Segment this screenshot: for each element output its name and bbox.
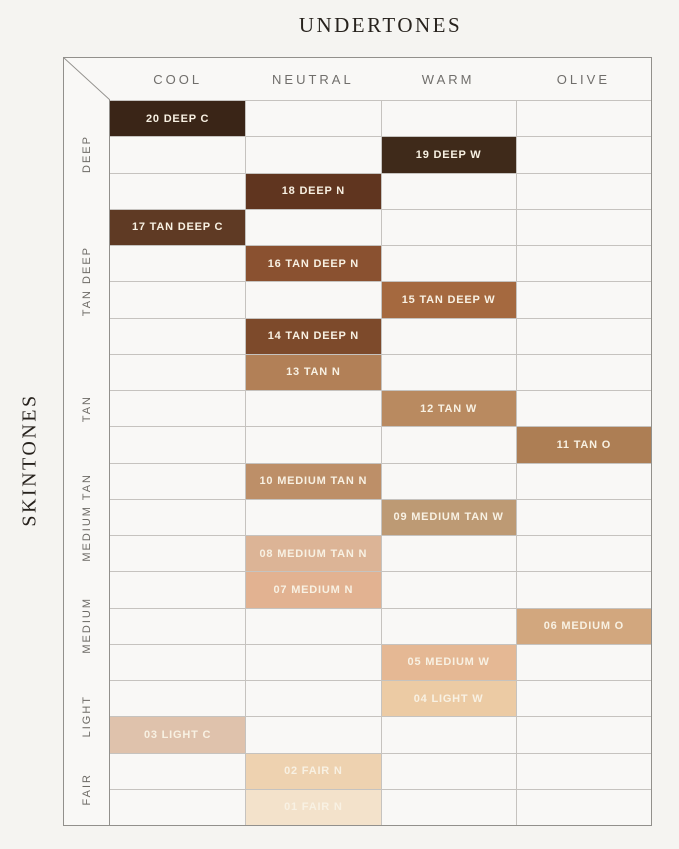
empty-cell	[381, 354, 516, 390]
empty-cell	[245, 390, 380, 426]
empty-cell	[381, 571, 516, 607]
empty-cell	[381, 789, 516, 825]
empty-cell	[110, 535, 245, 571]
shade-swatch: 17 TAN DEEP C	[110, 209, 245, 245]
shade-swatch: 18 DEEP N	[245, 173, 380, 209]
empty-cell	[110, 680, 245, 716]
empty-cell	[516, 680, 651, 716]
shade-swatch: 10 MEDIUM TAN N	[245, 463, 380, 499]
column-header-warm: WARM	[381, 58, 516, 100]
empty-cell	[110, 571, 245, 607]
shade-swatch: 05 MEDIUM W	[381, 644, 516, 680]
empty-cell	[381, 753, 516, 789]
empty-cell	[381, 318, 516, 354]
empty-cell	[381, 716, 516, 752]
empty-cell	[245, 281, 380, 317]
empty-cell	[381, 463, 516, 499]
diagonal-line	[64, 58, 110, 100]
empty-cell	[381, 209, 516, 245]
shade-swatch: 12 TAN W	[381, 390, 516, 426]
empty-cell	[110, 354, 245, 390]
empty-cell	[245, 716, 380, 752]
shade-swatch: 06 MEDIUM O	[516, 608, 651, 644]
empty-cell	[110, 426, 245, 462]
empty-cell	[381, 535, 516, 571]
empty-cell	[381, 608, 516, 644]
empty-cell	[516, 354, 651, 390]
empty-cell	[110, 608, 245, 644]
empty-cell	[245, 209, 380, 245]
empty-cell	[516, 535, 651, 571]
column-header-neutral: NEUTRAL	[245, 58, 380, 100]
empty-cell	[516, 281, 651, 317]
corner-diagonal-cell	[64, 58, 110, 100]
row-group-fair: FAIR	[64, 753, 109, 826]
empty-cell	[110, 499, 245, 535]
skintones-title: SKINTONES	[19, 393, 42, 526]
shade-swatch: 08 MEDIUM TAN N	[245, 535, 380, 571]
shade-grid: 20 DEEP C 19 DEEP W 18 DEEP N 17 TAN DEE…	[110, 100, 651, 825]
empty-cell	[110, 245, 245, 281]
shade-swatch: 02 FAIR N	[245, 753, 380, 789]
empty-cell	[110, 463, 245, 499]
shade-swatch: 04 LIGHT W	[381, 680, 516, 716]
shade-swatch: 09 MEDIUM TAN W	[381, 499, 516, 535]
shade-swatch: 13 TAN N	[245, 354, 380, 390]
empty-cell	[110, 753, 245, 789]
empty-cell	[245, 499, 380, 535]
empty-cell	[110, 173, 245, 209]
shade-swatch: 14 TAN DEEP N	[245, 318, 380, 354]
empty-cell	[516, 318, 651, 354]
skintone-group-column: DEEP TAN DEEP TAN MEDIUM TAN MEDIUM LIGH…	[64, 100, 110, 825]
empty-cell	[516, 245, 651, 281]
empty-cell	[245, 100, 380, 136]
empty-cell	[516, 716, 651, 752]
empty-cell	[110, 136, 245, 172]
shade-swatch: 20 DEEP C	[110, 100, 245, 136]
empty-cell	[245, 608, 380, 644]
empty-cell	[245, 136, 380, 172]
shade-swatch: 03 LIGHT C	[110, 716, 245, 752]
empty-cell	[245, 644, 380, 680]
shade-swatch: 16 TAN DEEP N	[245, 245, 380, 281]
row-group-light: LIGHT	[64, 680, 109, 753]
empty-cell	[516, 100, 651, 136]
empty-cell	[110, 789, 245, 825]
shade-swatch: 11 TAN O	[516, 426, 651, 462]
row-group-medium-tan: MEDIUM TAN	[64, 463, 109, 572]
shade-matrix-table: COOL NEUTRAL WARM OLIVE DEEP TAN DEEP TA…	[63, 57, 652, 826]
empty-cell	[516, 390, 651, 426]
row-group-tan-deep: TAN DEEP	[64, 209, 109, 354]
empty-cell	[516, 753, 651, 789]
empty-cell	[245, 680, 380, 716]
empty-cell	[245, 426, 380, 462]
empty-cell	[110, 390, 245, 426]
empty-cell	[381, 245, 516, 281]
empty-cell	[516, 644, 651, 680]
column-header-olive: OLIVE	[516, 58, 651, 100]
empty-cell	[381, 426, 516, 462]
row-group-medium: MEDIUM	[64, 571, 109, 680]
shade-swatch: 15 TAN DEEP W	[381, 281, 516, 317]
empty-cell	[516, 173, 651, 209]
empty-cell	[516, 463, 651, 499]
empty-cell	[516, 136, 651, 172]
empty-cell	[110, 281, 245, 317]
empty-cell	[110, 644, 245, 680]
shade-chart: UNDERTONES SKINTONES COOL NEUTRAL WARM O…	[0, 0, 679, 849]
shade-swatch: 07 MEDIUM N	[245, 571, 380, 607]
empty-cell	[381, 173, 516, 209]
row-group-tan: TAN	[64, 354, 109, 463]
empty-cell	[516, 499, 651, 535]
empty-cell	[516, 571, 651, 607]
row-group-deep: DEEP	[64, 100, 109, 209]
empty-cell	[381, 100, 516, 136]
undertones-title: UNDERTONES	[109, 13, 652, 38]
shade-swatch: 19 DEEP W	[381, 136, 516, 172]
undertone-header-row: COOL NEUTRAL WARM OLIVE	[110, 58, 651, 100]
empty-cell	[516, 789, 651, 825]
shade-swatch: 01 FAIR N	[245, 789, 380, 825]
empty-cell	[516, 209, 651, 245]
empty-cell	[110, 318, 245, 354]
column-header-cool: COOL	[110, 58, 245, 100]
